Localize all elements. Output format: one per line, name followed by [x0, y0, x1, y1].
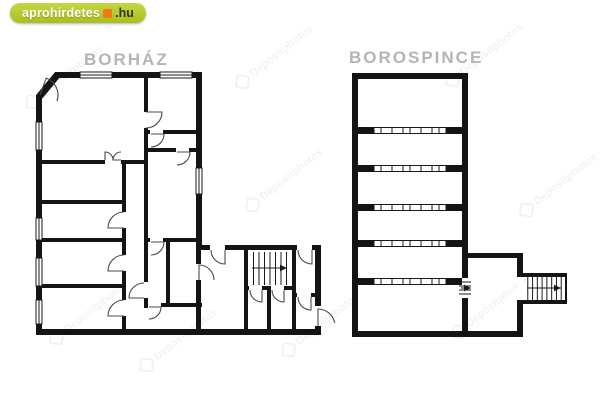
wall [42, 200, 123, 204]
wall [358, 240, 374, 247]
wall [358, 127, 374, 134]
wall [196, 72, 202, 250]
wall [36, 329, 321, 335]
wall [267, 290, 271, 329]
wall [358, 204, 374, 211]
door-swing-arc [108, 255, 124, 271]
door-opening [105, 160, 121, 164]
arrow-head-icon [280, 265, 287, 271]
plan-title-borhaz: BORHÁZ [84, 50, 169, 70]
door-swing-arc [177, 152, 190, 165]
door-opening [297, 245, 312, 250]
door-swing-arc [211, 250, 225, 264]
door-swing-arc [149, 307, 161, 319]
wall [462, 253, 523, 258]
wall [42, 284, 123, 288]
door-swing-arc [113, 152, 121, 160]
door-opening [210, 245, 225, 250]
door-opening [122, 255, 126, 271]
door-opening [122, 212, 126, 228]
logo-tld-text: .hu [115, 6, 134, 20]
wall [358, 278, 374, 285]
logo-dot-icon [103, 9, 112, 18]
door-opening [271, 286, 284, 290]
door-opening [297, 293, 311, 297]
door-swing-arc [146, 112, 162, 128]
wall [42, 238, 123, 242]
wall [446, 165, 462, 172]
door-opening [148, 303, 161, 307]
wall [446, 127, 462, 134]
wall [42, 160, 144, 164]
door-swing-arc [298, 297, 311, 310]
plan-title-borospince: BOROSPINCE [349, 48, 483, 68]
door-swing-arc [151, 134, 164, 147]
wall [352, 73, 358, 337]
door-opening [122, 300, 126, 316]
wall [446, 240, 462, 247]
logo-brand-text: aprohirdetes [22, 6, 100, 20]
door-opening [150, 130, 163, 134]
door-swing-arc [298, 250, 312, 264]
door-swing-arc [105, 152, 113, 160]
door-swing-arc [151, 242, 164, 255]
door-swing-arc [108, 212, 124, 228]
door-swing-arc [250, 290, 262, 302]
wall [358, 165, 374, 172]
door-swing-arc [129, 283, 144, 298]
door-opening [249, 286, 262, 290]
door-opening [144, 112, 148, 128]
door-opening [517, 277, 523, 300]
site-logo: aprohirdetes .hu [10, 3, 146, 23]
wall [166, 242, 170, 303]
wall [352, 331, 523, 337]
door-opening [144, 282, 148, 298]
door-swing-arc [272, 290, 284, 302]
door-opening [150, 238, 163, 242]
wall [352, 73, 468, 79]
door-opening [176, 148, 189, 152]
wall [144, 72, 148, 308]
floorplan-image: { "page": {"background": "#ffffff"}, "lo… [0, 0, 600, 400]
wall [523, 273, 566, 277]
wall [462, 73, 468, 257]
wall [462, 257, 468, 278]
wall [148, 148, 202, 152]
wall [196, 250, 201, 329]
arrow-head-icon [554, 285, 561, 291]
wall [446, 204, 462, 211]
wall [523, 300, 566, 304]
door-swing-arc [199, 265, 214, 280]
door-swing-arc [108, 300, 124, 316]
